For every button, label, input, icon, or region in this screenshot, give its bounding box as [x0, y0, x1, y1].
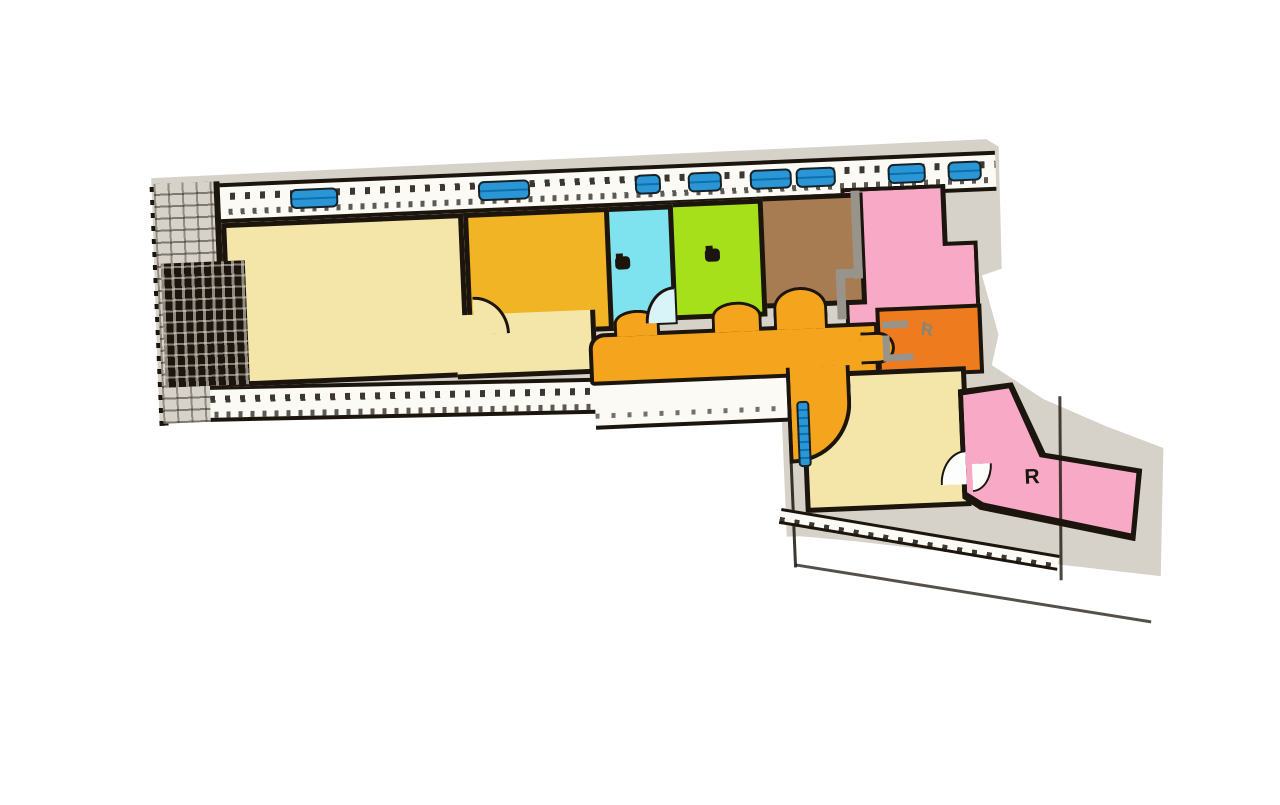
corridor-door-swing — [711, 301, 762, 333]
room-marker-icon — [615, 256, 631, 270]
window-icon — [687, 171, 722, 192]
window-icon — [290, 187, 339, 209]
room-label-r-text: R — [1024, 465, 1040, 490]
window-icon — [749, 168, 792, 190]
window-icon — [478, 179, 531, 201]
window-icon — [947, 160, 982, 181]
window-icon — [634, 174, 661, 195]
floor-plan-scan: R1 R — [148, 96, 1178, 638]
room-marker-icon — [705, 248, 721, 262]
room-label-r1-sub: 1 — [921, 320, 928, 333]
gray-stair-mark — [883, 353, 913, 361]
room-cream-large — [221, 213, 470, 387]
boundary-line — [795, 563, 1151, 623]
gray-stair-mark — [882, 321, 908, 329]
window-icon — [795, 166, 836, 188]
window-icon — [796, 401, 812, 467]
window-icon — [887, 163, 926, 185]
corridor-door-swing — [772, 286, 828, 330]
stair-block-hatched — [161, 260, 250, 387]
